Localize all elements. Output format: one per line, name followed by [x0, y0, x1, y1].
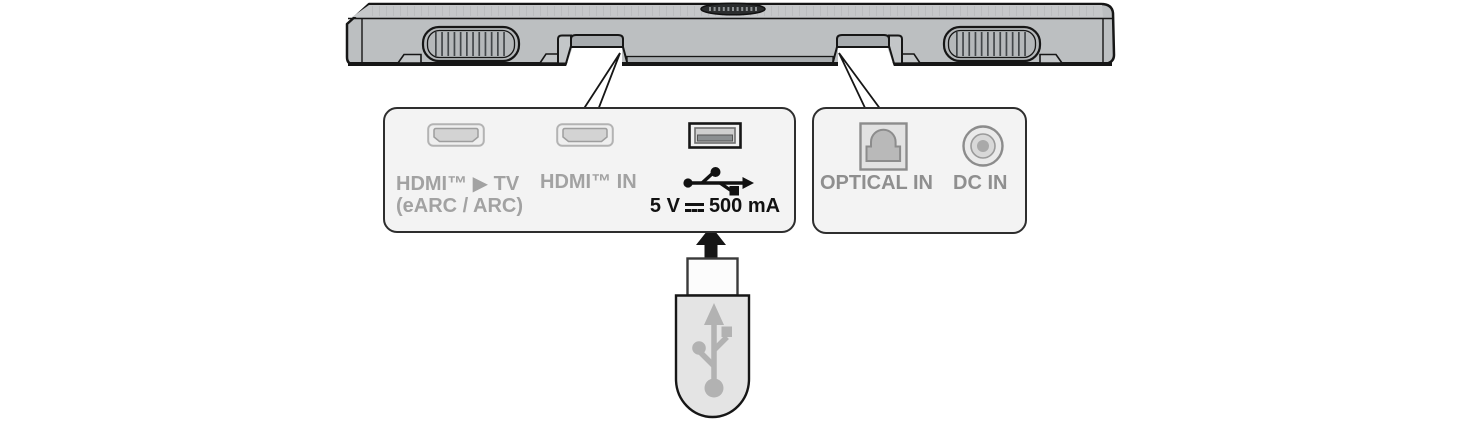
usb-flash-drive-graphic	[676, 259, 749, 418]
usb-power-prefix: 5 V	[650, 195, 680, 217]
dc-voltage-symbol-icon	[685, 203, 704, 212]
usb-power-suffix: 500 mA	[709, 195, 780, 217]
hdmi-tv-port-label-line2: (eARC / ARC)	[396, 195, 523, 217]
soundbar-graphic	[347, 3, 1114, 66]
ports-callout-panel-left: HDMI™ ▶ TV (eARC / ARC) HDMI™ IN 5 V 500…	[383, 107, 796, 233]
ports-callout-panel-right: OPTICAL IN DC IN	[812, 107, 1027, 234]
manual-illustration-canvas: HDMI™ ▶ TV (eARC / ARC) HDMI™ IN 5 V 500…	[0, 0, 1465, 424]
dc-in-port-icon	[962, 125, 1004, 167]
optical-port-icon	[859, 122, 908, 171]
dc-in-port-label: DC IN	[953, 172, 1007, 194]
hdmi-tv-port-label: HDMI™ ▶ TV (eARC / ARC)	[396, 173, 523, 217]
usb-port-icon	[688, 122, 742, 149]
hdmi-in-port-icon	[556, 123, 614, 147]
speaker-grille-left	[423, 27, 519, 61]
optical-in-port-label: OPTICAL IN	[820, 172, 933, 194]
hdmi-tv-port-label-line1: HDMI™ ▶ TV	[396, 173, 523, 195]
usb-drive-connector	[688, 259, 738, 296]
hdmi-in-port-label: HDMI™ IN	[540, 171, 637, 193]
hdmi-tv-port-icon	[427, 123, 485, 147]
usb-symbol-icon	[683, 166, 758, 198]
usb-power-rating-label: 5 V 500 mA	[640, 195, 790, 217]
speaker-grille-right	[944, 27, 1040, 61]
